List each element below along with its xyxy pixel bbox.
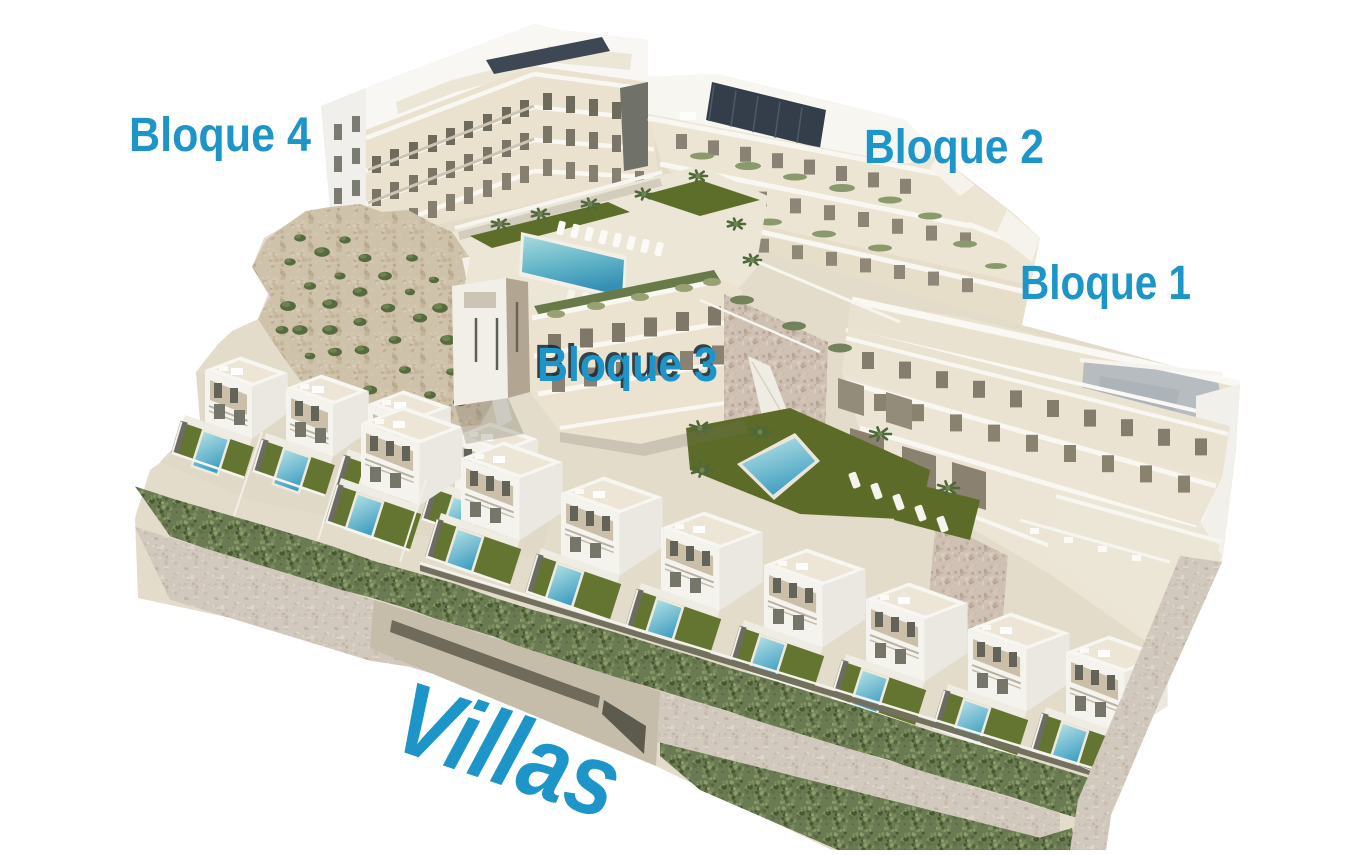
svg-text:Bloque 3: Bloque 3: [537, 339, 718, 392]
svg-text:Bloque 1: Bloque 1: [1020, 257, 1191, 310]
svg-text:Bloque 4: Bloque 4: [129, 109, 311, 162]
svg-text:Bloque 2: Bloque 2: [864, 121, 1044, 174]
